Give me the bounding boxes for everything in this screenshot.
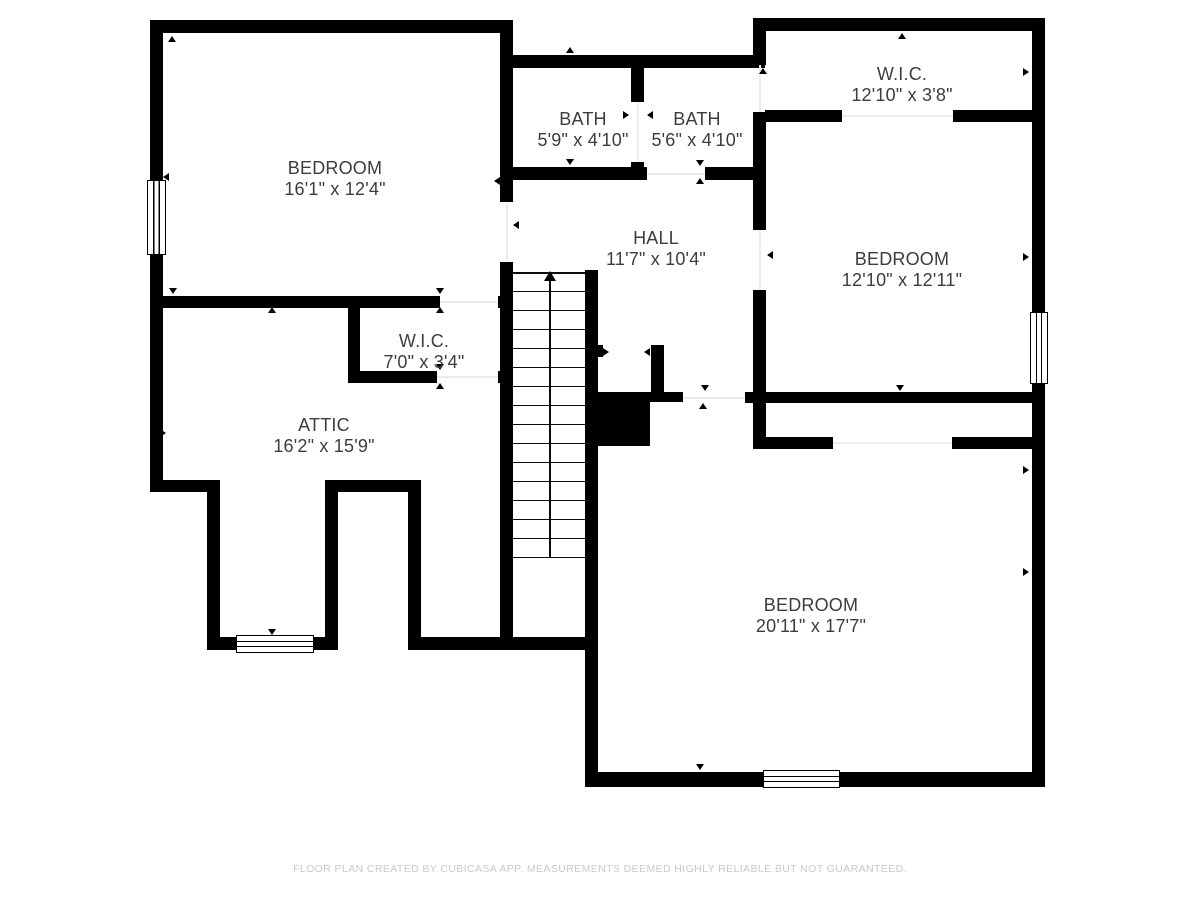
wall: [150, 20, 513, 33]
stair-tread: [513, 329, 585, 331]
door-opening-threshold: [683, 397, 745, 399]
door-opening-threshold: [842, 115, 953, 117]
wall: [765, 110, 842, 122]
door-opening-threshold: [833, 442, 952, 444]
room-name: ATTIC: [273, 415, 374, 436]
door-marker-icon: [696, 764, 704, 770]
room-dimensions: 20'11" x 17'7": [756, 616, 866, 637]
door-marker-icon: [566, 47, 574, 53]
door-marker-icon: [603, 348, 609, 356]
door-marker-icon: [759, 68, 767, 74]
door-marker-icon: [1023, 253, 1029, 261]
door-marker-icon: [1023, 466, 1029, 474]
window-bedroom-right: [1030, 312, 1048, 384]
wall: [150, 296, 440, 308]
room-label-wic-top-right: W.I.C.12'10" x 3'8": [851, 64, 952, 106]
wall: [753, 290, 766, 449]
wall: [325, 492, 338, 650]
wall: [952, 437, 1045, 449]
room-dimensions: 11'7" x 10'4": [606, 249, 706, 270]
window-bedroom-bottom: [763, 770, 840, 788]
room-name: BEDROOM: [756, 595, 866, 616]
room-label-hall: HALL11'7" x 10'4": [606, 228, 706, 270]
room-label-bedroom-right: BEDROOM12'10" x 12'11": [842, 249, 962, 291]
door-marker-icon: [436, 288, 444, 294]
room-dimensions: 5'9" x 4'10": [537, 130, 628, 151]
room-dimensions: 16'1" x 12'4": [284, 179, 385, 200]
door-marker-icon: [160, 429, 166, 437]
room-label-bath-left: BATH5'9" x 4'10": [537, 109, 628, 151]
stair-tread: [513, 519, 585, 521]
room-dimensions: 16'2" x 15'9": [273, 436, 374, 457]
door-marker-icon: [268, 307, 276, 313]
room-name: BATH: [537, 109, 628, 130]
wall: [207, 480, 220, 650]
wall: [753, 112, 766, 230]
wall: [500, 262, 513, 637]
door-marker-icon: [436, 307, 444, 313]
room-label-bedroom-top-left: BEDROOM16'1" x 12'4": [284, 158, 385, 200]
footer-disclaimer: FLOOR PLAN CREATED BY CUBICASA APP. MEAS…: [0, 863, 1200, 875]
wall: [150, 20, 163, 492]
stair-tread: [513, 348, 585, 350]
room-name: BEDROOM: [842, 249, 962, 270]
wall: [753, 437, 833, 449]
window-attic-bay: [236, 635, 314, 653]
floor-plan-canvas: BEDROOM16'1" x 12'4"BATH5'9" x 4'10"BATH…: [0, 0, 1200, 900]
door-opening-threshold: [647, 173, 705, 175]
door-marker-icon: [644, 348, 650, 356]
wall: [765, 18, 1045, 31]
stair-tread: [513, 405, 585, 407]
door-marker-icon: [566, 159, 574, 165]
stair-tread: [513, 557, 585, 559]
stair-tread: [513, 291, 585, 293]
room-label-attic: ATTIC16'2" x 15'9": [273, 415, 374, 457]
stair-tread: [513, 481, 585, 483]
room-name: W.I.C.: [851, 64, 952, 85]
stair-tread: [513, 367, 585, 369]
wall: [348, 296, 360, 383]
room-dimensions: 7'0" x 3'4": [384, 352, 465, 373]
door-marker-icon: [268, 629, 276, 635]
room-dimensions: 5'6" x 4'10": [651, 130, 742, 151]
door-marker-icon: [696, 178, 704, 184]
door-opening-threshold: [440, 301, 498, 303]
wall: [651, 345, 664, 397]
stair-tread: [513, 500, 585, 502]
door-marker-icon: [169, 288, 177, 294]
room-name: HALL: [606, 228, 706, 249]
door-marker-icon: [494, 177, 500, 185]
stair-tread: [513, 386, 585, 388]
stair-tread: [513, 424, 585, 426]
room-label-bedroom-bottom: BEDROOM20'11" x 17'7": [756, 595, 866, 637]
door-opening-threshold: [506, 202, 508, 262]
room-label-bath-right: BATH5'6" x 4'10": [651, 109, 742, 151]
staircase: [513, 272, 585, 558]
door-marker-icon: [896, 385, 904, 391]
wall: [500, 167, 647, 180]
wall: [753, 18, 766, 65]
door-opening-threshold: [437, 376, 498, 378]
stair-tread: [513, 310, 585, 312]
door-marker-icon: [699, 403, 707, 409]
room-name: BATH: [651, 109, 742, 130]
door-marker-icon: [168, 36, 176, 42]
stair-tread: [513, 462, 585, 464]
room-dimensions: 12'10" x 3'8": [851, 85, 952, 106]
stair-tread: [513, 272, 585, 274]
room-dimensions: 12'10" x 12'11": [842, 270, 962, 291]
wall: [631, 55, 644, 102]
door-marker-icon: [898, 33, 906, 39]
door-marker-icon: [436, 383, 444, 389]
room-name: W.I.C.: [384, 331, 465, 352]
stair-tread: [513, 443, 585, 445]
stair-tread: [513, 538, 585, 540]
room-label-wic-middle: W.I.C.7'0" x 3'4": [384, 331, 465, 373]
wall: [745, 392, 1045, 403]
door-marker-icon: [767, 251, 773, 259]
wall: [408, 480, 421, 650]
door-opening-threshold: [759, 230, 761, 290]
stair-center-line: [549, 278, 551, 558]
wall: [498, 371, 513, 383]
door-marker-icon: [701, 385, 709, 391]
door-marker-icon: [696, 160, 704, 166]
wall: [595, 392, 650, 446]
door-marker-icon: [1023, 568, 1029, 576]
wall: [408, 637, 590, 650]
door-opening-threshold: [637, 102, 639, 162]
window-bedroom-top-left: [147, 180, 166, 255]
room-name: BEDROOM: [284, 158, 385, 179]
door-marker-icon: [163, 173, 169, 181]
wall: [325, 480, 421, 492]
door-marker-icon: [513, 221, 519, 229]
door-marker-icon: [1023, 68, 1029, 76]
